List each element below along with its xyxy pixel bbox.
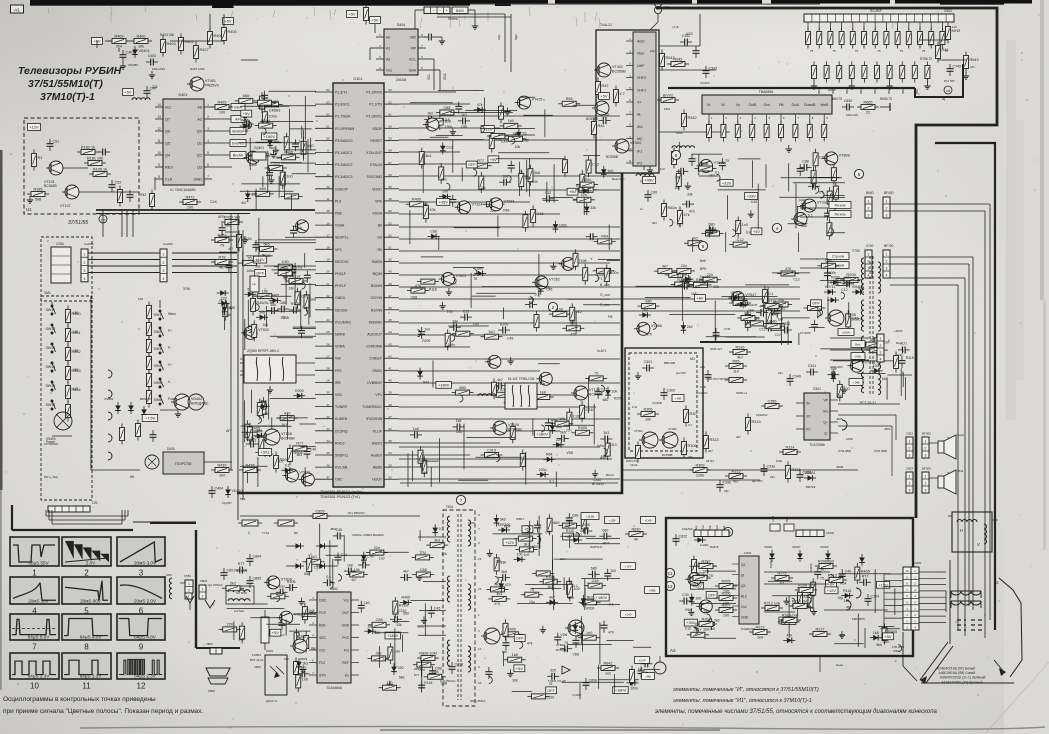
svg-text:ΣМ1: ΣМ1 — [664, 107, 670, 111]
svg-text:10k: 10k — [262, 289, 268, 293]
svg-text:64μS 3.3V: 64μS 3.3V — [80, 674, 102, 679]
svg-text:RBS0: RBS0 — [373, 466, 382, 470]
svg-text:10k: 10k — [650, 49, 655, 53]
svg-text:R209: R209 — [500, 322, 509, 326]
svg-text:Q-: Q- — [824, 432, 828, 436]
svg-text:1к2: 1к2 — [605, 672, 611, 676]
svg-text:CVBS/Y: CVBS/Y — [369, 357, 383, 361]
svg-text:IRE: IRE — [335, 381, 342, 385]
svg-text:+180V: +180V — [387, 633, 399, 638]
svg-text:100: 100 — [187, 206, 193, 210]
svg-text:BF400: BF400 — [884, 191, 894, 195]
svg-text:OFF: OFF — [516, 636, 524, 641]
svg-text:VD830: VD830 — [571, 533, 582, 537]
svg-text:C60: C60 — [651, 191, 658, 195]
svg-text:X20A: X20A — [56, 242, 65, 246]
svg-text:11: 11 — [770, 310, 774, 314]
svg-text:100: 100 — [723, 614, 729, 618]
svg-text:PN25V9: PN25V9 — [205, 84, 219, 88]
svg-text:50Гц_33щ: 50Гц_33щ — [44, 475, 59, 479]
svg-text:Q1: Q1 — [197, 142, 202, 146]
svg-text:КУП459Ш: КУП459Ш — [44, 442, 58, 446]
svg-text:Vcc: Vcc — [165, 106, 171, 110]
svg-text:BC558B: BC558B — [612, 70, 626, 74]
svg-text:ВМ1-45: ВМ1-45 — [140, 397, 151, 401]
svg-text:10μ: 10μ — [565, 524, 571, 528]
svg-text:1: 1 — [925, 474, 927, 478]
svg-text:In AV1: In AV1 — [252, 259, 261, 263]
svg-text:IFVO/SVB: IFVO/SVB — [366, 417, 383, 421]
svg-text:50: 50 — [388, 258, 392, 262]
svg-text:44: 44 — [388, 330, 392, 334]
svg-text:KVL/EWG: KVL/EWG — [335, 320, 351, 324]
svg-text:+45V: +45V — [644, 178, 654, 183]
svg-text:33k: 33k — [396, 623, 402, 627]
svg-text:J004: J004 — [884, 427, 891, 431]
svg-text:33k: 33k — [512, 679, 518, 683]
svg-text:C341: C341 — [808, 364, 817, 368]
svg-text:VD8: VD8 — [583, 523, 590, 527]
svg-text:33: 33 — [326, 427, 330, 431]
svg-text:GND: GND — [342, 624, 350, 628]
svg-text:VT898: VT898 — [839, 153, 850, 157]
svg-text:1: 1 — [880, 336, 882, 340]
svg-text:AudExt: AudExt — [371, 454, 382, 458]
svg-text:50: 50 — [326, 137, 330, 141]
svg-text:3k3: 3k3 — [496, 592, 502, 596]
svg-text:Стр.ком: Стр.ком — [832, 255, 844, 259]
svg-text:2μ2 50V: 2μ2 50V — [752, 479, 763, 483]
svg-text:V-: V- — [168, 380, 171, 384]
svg-text:29: 29 — [326, 379, 330, 383]
svg-text:AL: AL — [637, 113, 641, 117]
svg-text:0Вм: 0Вм — [873, 89, 877, 94]
svg-text:R2B: R2B — [319, 624, 326, 628]
svg-text:10μ: 10μ — [837, 596, 843, 600]
svg-text:+НВ: +НВ — [675, 397, 681, 401]
svg-text:ЮВ17: ЮВ17 — [516, 517, 525, 521]
svg-text:VT584: VT584 — [504, 199, 515, 203]
svg-text:1k8: 1k8 — [296, 226, 302, 230]
svg-text:75: 75 — [855, 49, 859, 53]
svg-text:3М1: 3М1 — [44, 291, 51, 295]
svg-text:0Вм: 0Вм — [887, 89, 891, 94]
svg-text:51: 51 — [326, 125, 330, 129]
svg-text:4: 4 — [163, 277, 165, 281]
svg-text:+12V: +12V — [505, 540, 515, 545]
svg-text:R0: R0 — [378, 248, 383, 252]
svg-text:ΣкΣ: ΣкΣ — [638, 667, 643, 671]
svg-text:ЮН2: ЮН2 — [952, 29, 961, 33]
svg-text:3: 3 — [868, 213, 870, 217]
svg-text:SW16: SW16 — [46, 403, 56, 407]
svg-text:C801: C801 — [227, 569, 236, 573]
svg-text:10μ: 10μ — [447, 309, 453, 313]
svg-text:ΣкΣ: ΣкΣ — [284, 657, 289, 661]
svg-text:W-: W- — [721, 103, 725, 107]
svg-text:VD301: VD301 — [764, 545, 773, 549]
svg-text:52: 52 — [388, 233, 392, 237]
svg-text:ВЛ: ВЛ — [294, 531, 298, 535]
svg-text:1k8: 1k8 — [495, 559, 501, 563]
svg-text:Q+: Q+ — [823, 421, 828, 425]
svg-text:OSC: OSC — [319, 599, 327, 603]
svg-text:A8: A8 — [197, 106, 202, 110]
svg-text:+5V: +5V — [243, 111, 250, 116]
svg-text:SCL: SCL — [409, 58, 416, 62]
svg-text:C45: C45 — [592, 579, 599, 583]
svg-text:SNDPLL: SNDPLL — [335, 454, 349, 458]
svg-text:4: 4 — [207, 139, 209, 143]
svg-text:470: 470 — [570, 333, 576, 337]
svg-text:R64: R64 — [807, 606, 813, 610]
svg-text:Кщая: Кщая — [836, 663, 843, 667]
svg-text:10μ: 10μ — [473, 322, 479, 326]
svg-text:C401: C401 — [126, 51, 135, 55]
svg-text:R756 72: R756 72 — [920, 57, 932, 61]
svg-text:В42: В42 — [958, 469, 964, 473]
svg-text:R209: R209 — [614, 397, 622, 401]
svg-text:56: 56 — [388, 173, 392, 177]
svg-text:+1УФ: +1УФ — [644, 519, 652, 523]
svg-text:BГconst: BГconst — [592, 482, 604, 486]
svg-text:680: 680 — [883, 640, 889, 644]
svg-text:5k6: 5k6 — [500, 518, 506, 522]
svg-text:DL101 ТРИК-С08: DL101 ТРИК-С08 — [508, 377, 534, 381]
svg-text:FU801: FU801 — [252, 653, 261, 657]
svg-text:2: 2 — [552, 305, 555, 310]
svg-text:680: 680 — [243, 94, 249, 98]
svg-text:47μ25В: 47μ25В — [652, 401, 662, 405]
svg-text:23n: 23n — [778, 371, 783, 375]
svg-text:VT402: VT402 — [612, 65, 623, 69]
svg-text:VD402: VD402 — [191, 397, 202, 401]
svg-text:R209: R209 — [422, 339, 430, 343]
svg-text:5k6: 5k6 — [276, 156, 282, 160]
svg-text:VD8: VD8 — [263, 412, 270, 416]
svg-text:D600: D600 — [828, 88, 836, 92]
svg-text:+33V: +33V — [722, 180, 732, 185]
svg-text:InГиΔ: InГиΔ — [630, 463, 638, 467]
svg-text:1k0: 1k0 — [610, 569, 616, 573]
svg-text:R118: R118 — [399, 604, 408, 608]
svg-text:1k0: 1k0 — [709, 173, 715, 177]
svg-text:3: 3 — [886, 266, 888, 270]
svg-text:Vr-: Vr- — [707, 103, 711, 107]
svg-text:VT601: VT601 — [456, 274, 467, 278]
svg-text:АΣ4Е4ОО1Ш (5У) Белый: АΣ4Е4ОО1Ш (5У) Белый — [937, 667, 975, 671]
svg-text:AUDOUT: AUDOUT — [367, 333, 383, 337]
svg-text:C310: C310 — [398, 609, 406, 613]
svg-text:4: 4 — [868, 273, 870, 277]
svg-text:21: 21 — [326, 282, 330, 286]
svg-text:22n: 22n — [374, 546, 380, 550]
svg-text:680: 680 — [553, 521, 559, 525]
svg-text:TUNER: TUNER — [335, 405, 348, 409]
svg-text:120k: 120k — [696, 474, 704, 478]
svg-text:37: 37 — [388, 415, 392, 419]
svg-text:10k: 10k — [675, 176, 681, 180]
svg-text:17: 17 — [326, 233, 330, 237]
svg-text:100: 100 — [697, 582, 703, 586]
svg-text:1k8: 1k8 — [310, 297, 316, 301]
svg-text:R656 75: R656 75 — [880, 97, 892, 101]
svg-text:VT808: VT808 — [440, 120, 451, 124]
svg-text:100n: 100n — [247, 269, 255, 273]
svg-text:1k0: 1k0 — [311, 647, 317, 651]
svg-text:GND: GND — [896, 353, 904, 357]
svg-text:Vtun: Vtun — [637, 52, 644, 56]
svg-text:R438: R438 — [245, 463, 254, 467]
svg-text:1n0: 1n0 — [424, 328, 430, 332]
svg-text:Телевизоры РУБИН: Телевизоры РУБИН — [18, 65, 122, 77]
svg-text:+45В: +45В — [648, 589, 655, 593]
svg-text:2k2: 2k2 — [687, 325, 693, 329]
svg-text:A2: A2 — [386, 58, 390, 62]
svg-text:C12: C12 — [793, 277, 799, 281]
svg-text:47k: 47k — [477, 103, 483, 107]
svg-text:1: 1 — [188, 582, 190, 586]
svg-text:G_осн: G_осн — [600, 293, 610, 297]
svg-text:R2/VIN: R2/VIN — [371, 308, 383, 312]
svg-text:КИПД45Ш: КИПД45Ш — [191, 402, 209, 406]
svg-text:1n0: 1n0 — [742, 223, 748, 227]
svg-text:+5V: +5V — [516, 666, 523, 671]
svg-text:VT107: VT107 — [60, 204, 71, 208]
svg-text:C33a: C33a — [767, 465, 776, 469]
svg-text:VT302: VT302 — [668, 427, 677, 431]
svg-text:Q7: Q7 — [165, 118, 170, 122]
svg-text:50Гц 3М0Х.: 50Гц 3М0Х. — [470, 699, 486, 703]
svg-text:5k6: 5k6 — [534, 171, 540, 175]
svg-text:P1.7/SDA: P1.7/SDA — [335, 115, 351, 119]
svg-text:FB: FB — [608, 315, 613, 319]
svg-text:4k: 4k — [634, 538, 638, 542]
svg-text:5: 5 — [207, 151, 209, 155]
svg-text:35: 35 — [388, 439, 392, 443]
svg-text:12: 12 — [478, 647, 482, 651]
svg-text:VT262: VT262 — [549, 277, 560, 281]
svg-text:0.1: 0.1 — [285, 463, 290, 467]
svg-text:7: 7 — [207, 175, 209, 179]
svg-text:P1.2/INT0: P1.2/INT0 — [366, 91, 382, 95]
svg-text:5k6: 5k6 — [501, 570, 507, 574]
svg-text:C88: C88 — [376, 618, 383, 622]
svg-text:1к0: 1к0 — [757, 636, 763, 640]
svg-text:Щ: Щ — [942, 97, 945, 101]
svg-text:Вfanс: Вfanс — [700, 283, 709, 287]
svg-text:470: 470 — [785, 267, 791, 271]
svg-text:VW: VW — [335, 357, 341, 361]
svg-text:3: 3 — [925, 488, 927, 492]
svg-text:0Вм: 0Вм — [859, 89, 863, 94]
svg-text:R203: R203 — [695, 571, 704, 575]
svg-text:2: 2 — [909, 481, 911, 485]
svg-text:30μS 55V: 30μS 55V — [28, 561, 49, 566]
svg-text:BC548B: BC548B — [589, 393, 603, 397]
svg-text:1: 1 — [868, 252, 870, 256]
svg-text:10: 10 — [478, 681, 482, 685]
svg-text:C88: C88 — [461, 125, 467, 129]
svg-text:C45: C45 — [301, 294, 308, 298]
svg-text:53: 53 — [388, 221, 392, 225]
svg-text:25: 25 — [326, 330, 330, 334]
svg-text:+5V: +5V — [490, 157, 497, 162]
svg-text:ВмФ: ВмФ — [785, 517, 789, 522]
svg-text:Vp: Vp — [736, 103, 740, 107]
svg-text:+5V: +5V — [224, 19, 231, 24]
svg-text:75: 75 — [922, 49, 926, 53]
svg-text:BndVI: BndVI — [233, 153, 244, 158]
svg-text:R306: R306 — [688, 444, 697, 448]
svg-text:+12В: +12В — [608, 519, 615, 523]
svg-text:элементы, помеченные числами 3: элементы, помеченные числами 37/51/55, о… — [655, 709, 938, 715]
svg-text:R409: R409 — [114, 34, 123, 38]
svg-text:+180V: +180V — [596, 595, 608, 600]
svg-text:Q2: Q2 — [741, 563, 745, 567]
svg-text:1x0: 1x0 — [660, 167, 665, 171]
svg-text:при приеме сигнала "Цветные по: при приеме сигнала "Цветные полосы". Пок… — [3, 708, 204, 715]
svg-text:33k: 33k — [702, 162, 708, 166]
svg-text:P1.3/T1: P1.3/T1 — [335, 91, 347, 95]
svg-text:U80: U80 — [166, 573, 172, 577]
svg-text:P1.6/SCL: P1.6/SCL — [335, 103, 350, 107]
svg-text:31: 31 — [326, 403, 330, 407]
svg-text:1: 1 — [207, 103, 209, 107]
svg-text:1: 1 — [868, 199, 870, 203]
svg-text:A1: A1 — [14, 7, 20, 12]
svg-text:1n0: 1n0 — [746, 231, 752, 235]
svg-text:R44: R44 — [598, 124, 605, 128]
svg-text:SW4: SW4 — [154, 364, 162, 368]
svg-text:R209: R209 — [295, 389, 304, 393]
svg-text:R45/3L R2: R45/3L R2 — [257, 301, 275, 305]
svg-text:VP2: VP2 — [335, 248, 342, 252]
svg-text:0Вм: 0Вм — [901, 89, 905, 94]
svg-text:3k3: 3k3 — [441, 177, 447, 181]
svg-text:9: 9 — [139, 643, 144, 652]
svg-text:1: 1 — [202, 587, 204, 591]
svg-text:11: 11 — [668, 571, 673, 576]
svg-text:R407: R407 — [200, 48, 209, 52]
svg-text:TUNERAGC: TUNERAGC — [362, 405, 382, 409]
svg-text:5V1: 5V1 — [240, 497, 246, 501]
svg-text:OutA: OutA — [792, 103, 800, 107]
svg-text:V82: V82 — [410, 36, 416, 40]
svg-text:OUT: OUT — [342, 611, 349, 615]
svg-text:ETALIN: ETALIN — [370, 163, 382, 167]
svg-text:KUDEN: KUDEN — [335, 417, 348, 421]
svg-text:C88: C88 — [430, 230, 437, 234]
svg-text:(37Ф,38Ф): (37Ф,38Ф) — [838, 449, 851, 453]
svg-text:C40: C40 — [770, 320, 777, 324]
svg-text:BC548B: BC548B — [662, 453, 673, 457]
svg-text:34: 34 — [326, 439, 330, 443]
svg-text:A0: A0 — [386, 36, 390, 40]
svg-text:0Вм: 0Вм — [845, 89, 849, 94]
svg-text:XТ80: XТ80 — [184, 574, 191, 578]
svg-text:3k3: 3k3 — [827, 289, 833, 293]
svg-text:MP: MP — [411, 47, 417, 51]
svg-text:R118: R118 — [424, 681, 432, 685]
svg-text:C356: C356 — [767, 399, 776, 403]
svg-text:C310: C310 — [487, 448, 496, 452]
svg-text:Series: Series — [448, 17, 458, 21]
svg-text:C12: C12 — [545, 191, 552, 195]
svg-text:C301: C301 — [644, 360, 653, 364]
svg-text:KVL/SB: KVL/SB — [335, 466, 348, 470]
svg-text:C12: C12 — [841, 288, 847, 292]
svg-text:1k8: 1k8 — [512, 132, 518, 136]
svg-text:+140: +140 — [625, 613, 632, 617]
svg-text:SW12: SW12 — [46, 327, 56, 331]
svg-text:R182 1k: R182 1k — [81, 145, 95, 149]
svg-text:+5V: +5V — [124, 90, 131, 95]
svg-text:AF: AF — [226, 429, 231, 433]
svg-text:М1: М1 — [994, 581, 999, 585]
svg-text:75: 75 — [473, 277, 477, 281]
svg-text:C804: C804 — [253, 555, 262, 559]
svg-text:100: 100 — [219, 111, 225, 115]
svg-text:P+: P+ — [168, 329, 172, 333]
svg-text:B600: B600 — [866, 191, 874, 195]
svg-text:A1: A1 — [386, 47, 390, 51]
svg-text:R106 1k: R106 1k — [93, 167, 107, 171]
svg-text:INSSW2: INSSW2 — [369, 320, 382, 324]
svg-text:36 R2: 36 R2 — [706, 459, 714, 463]
svg-text:4k7: 4k7 — [403, 570, 409, 574]
svg-text:ВН4О5: ВН4О5 — [748, 303, 758, 307]
svg-text:100: 100 — [138, 297, 143, 301]
svg-text:P3.0/ADC0: P3.0/ADC0 — [335, 139, 353, 143]
svg-text:100n: 100n — [873, 364, 881, 368]
svg-text:VD801–VD804 ВН4006: VD801–VD804 ВН4006 — [352, 533, 384, 537]
svg-text:P1.0/INT1: P1.0/INT1 — [366, 115, 382, 119]
svg-text:R217: R217 — [815, 627, 824, 631]
svg-text:SRC: SRC — [319, 636, 327, 640]
svg-text:100n: 100n — [583, 178, 591, 182]
svg-text:PHYLF: PHYLF — [335, 284, 346, 288]
svg-text:0.1: 0.1 — [577, 634, 582, 638]
svg-text:AGC: AGC — [686, 32, 694, 36]
svg-text:18: 18 — [326, 246, 330, 250]
svg-text:R118: R118 — [906, 356, 914, 360]
svg-text:C12: C12 — [393, 612, 400, 616]
svg-text:2k2: 2k2 — [308, 609, 314, 613]
svg-text:R209: R209 — [831, 276, 840, 280]
svg-text:R118: R118 — [843, 589, 851, 593]
svg-text:Vss: Vss — [386, 69, 392, 73]
svg-text:P3.3/ADC3: P3.3/ADC3 — [335, 175, 353, 179]
svg-text:C302: C302 — [667, 389, 676, 393]
svg-text:VD8: VD8 — [411, 296, 418, 300]
svg-text:J09Ф: J09Ф — [836, 465, 844, 469]
svg-text:R04Σ: R04Σ — [673, 57, 683, 61]
svg-text:35: 35 — [388, 209, 392, 213]
svg-text:10: 10 — [905, 569, 909, 573]
svg-text:100k: 100k — [776, 459, 783, 463]
svg-text:4k7: 4k7 — [219, 266, 225, 270]
svg-text:53: 53 — [326, 100, 330, 104]
svg-text:ТЫΔ-21: ТЫΔ-21 — [600, 23, 612, 27]
svg-text:22n: 22n — [566, 429, 572, 433]
svg-text:Х802: Х802 — [254, 665, 261, 669]
svg-text:75: 75 — [220, 244, 224, 248]
svg-text:Q2: Q2 — [197, 154, 202, 158]
svg-text:GND1: GND1 — [372, 369, 382, 373]
svg-text:75: 75 — [247, 256, 251, 260]
svg-text:3k3: 3k3 — [652, 221, 657, 225]
